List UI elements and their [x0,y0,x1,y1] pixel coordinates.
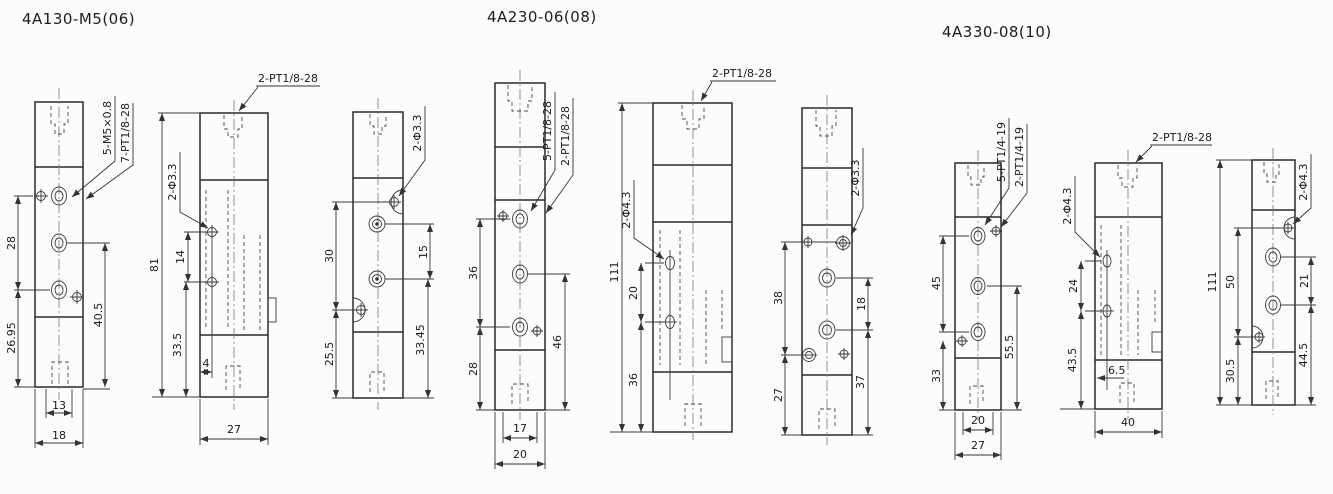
hidden-ports [206,115,260,390]
dim-label: 40 [1121,416,1135,429]
view-4a330-side: 24 43.5 6.5 40 2-PT1/8-28 2-Φ4.3 [1060,131,1212,438]
view-4a130-end: 30 25.5 15 33.45 2-Φ3.3 [323,98,434,410]
dim-label: 33.45 [414,324,427,356]
callout-label: 2-Φ3.3 [849,159,862,196]
dimension-lines [1081,261,1162,432]
port-holes [354,195,401,317]
body-outline [200,113,276,397]
title-4a130: 4A130-M5(06) [22,10,135,28]
dim-label: 24 [1067,279,1080,293]
dim-label: 38 [772,291,785,305]
callout-label: 5-PT1/8-28 [541,101,554,161]
title-4a230: 4A230-06(08) [487,8,597,26]
callout-label: 2-Φ4.3 [1061,187,1074,224]
callout-label: 5-M5×0.8 [101,101,114,155]
dim-label: 37 [854,375,867,389]
callout-label: 2-PT1/8-28 [559,106,572,166]
dimension-lines [162,113,268,439]
dim-label: 50 [1224,275,1237,289]
callout-label: 2-PT1/8-28 [1152,131,1212,144]
view-4a130-side: 81 14 33.5 4 27 2-PT1/8-28 2-Φ3.3 [148,72,320,445]
dim-label: 30 [323,249,336,263]
dim-label: 18 [855,297,868,311]
hidden-ports [660,105,722,426]
dim-label: 25.5 [323,342,336,367]
dim-label: 33.5 [171,333,184,358]
callout-label: 2-Φ4.3 [620,191,633,228]
hidden-ports [1264,162,1279,399]
dimension-lines [785,242,868,435]
dim-label: 45 [930,276,943,290]
dim-label: 17 [513,422,527,435]
dim-label: 20 [513,448,527,461]
title-4a330: 4A330-08(10) [942,23,1052,41]
body-outline [1095,163,1162,409]
port-holes [1253,222,1294,343]
dim-label: 27 [772,388,785,402]
extension-lines [332,202,434,398]
view-4a330-front: 45 33 55.5 20 27 5-PT1/4-19 2-PT1/4-19 [930,118,1027,460]
callout-label: 2-PT1/8-28 [712,67,772,80]
dim-label: 36 [627,373,640,387]
callout-leaders [180,86,320,228]
view-4a230-front: 36 28 46 17 20 5-PT1/8-28 2-PT1/8-28 [467,70,573,469]
callout-label: 7-PT1/8-28 [119,103,132,163]
callout-label: 2-PT1/8-28 [258,72,318,85]
dimension-lines [336,202,430,398]
dim-label: 46 [551,335,564,349]
dim-label: 55.5 [1003,335,1016,360]
dim-label: 13 [52,399,66,412]
callout-label: 2-PT1/4-19 [1013,127,1026,187]
dim-label: 43.5 [1066,348,1079,373]
view-4a130-front: 28 26.95 40.5 13 18 5-M5×0.8 7-PT1/8-28 [5,88,133,448]
dim-label: 30.5 [1224,359,1237,384]
view-4a330-end: 111 50 30.5 21 44.5 2-Φ4.3 [1206,148,1316,415]
body-outline [1252,160,1295,405]
drawing-svg: 4A130-M5(06) 4A230-06(08) 4A330-08(10) [0,0,1333,494]
dim-label: 20 [627,286,640,300]
dim-label: 15 [417,245,430,259]
dim-label: 28 [467,362,480,376]
callout-label: 2-Φ3.3 [411,114,424,151]
dim-label: 21 [1298,274,1311,288]
dim-label: 4 [203,357,210,370]
dim-label: 6.5 [1108,364,1126,377]
dim-label: 81 [148,258,161,272]
dim-label: 36 [467,266,480,280]
dim-label: 40.5 [92,303,105,328]
dim-label: 20 [971,414,985,427]
dim-label: 44.5 [1297,343,1310,368]
dim-label: 14 [174,250,187,264]
dim-label: 27 [971,439,985,452]
extension-lines [152,113,268,445]
dim-label: 28 [5,236,18,250]
callout-label: 2-Φ3.3 [166,163,179,200]
view-4a230-end: 38 27 18 37 2-Φ3.3 [772,95,873,445]
body-outline [653,103,732,432]
callout-label: 2-Φ4.3 [1297,163,1310,200]
dim-label: 111 [1206,272,1219,293]
callout-label: 5-PT1/4-19 [995,122,1008,182]
hidden-ports [51,106,68,384]
callout-leaders [634,81,776,259]
dim-label: 26.95 [5,322,18,354]
dim-label: 33 [930,369,943,383]
dim-label: 27 [227,423,241,436]
dim-label: 111 [608,262,621,283]
view-4a230-side: 111 20 36 2-PT1/8-28 2-Φ4.3 [608,67,776,440]
dim-label: 18 [52,429,66,442]
port-holes [801,235,851,362]
valve-dimension-drawing: 4A130-M5(06) 4A230-06(08) 4A330-08(10) [0,0,1333,494]
